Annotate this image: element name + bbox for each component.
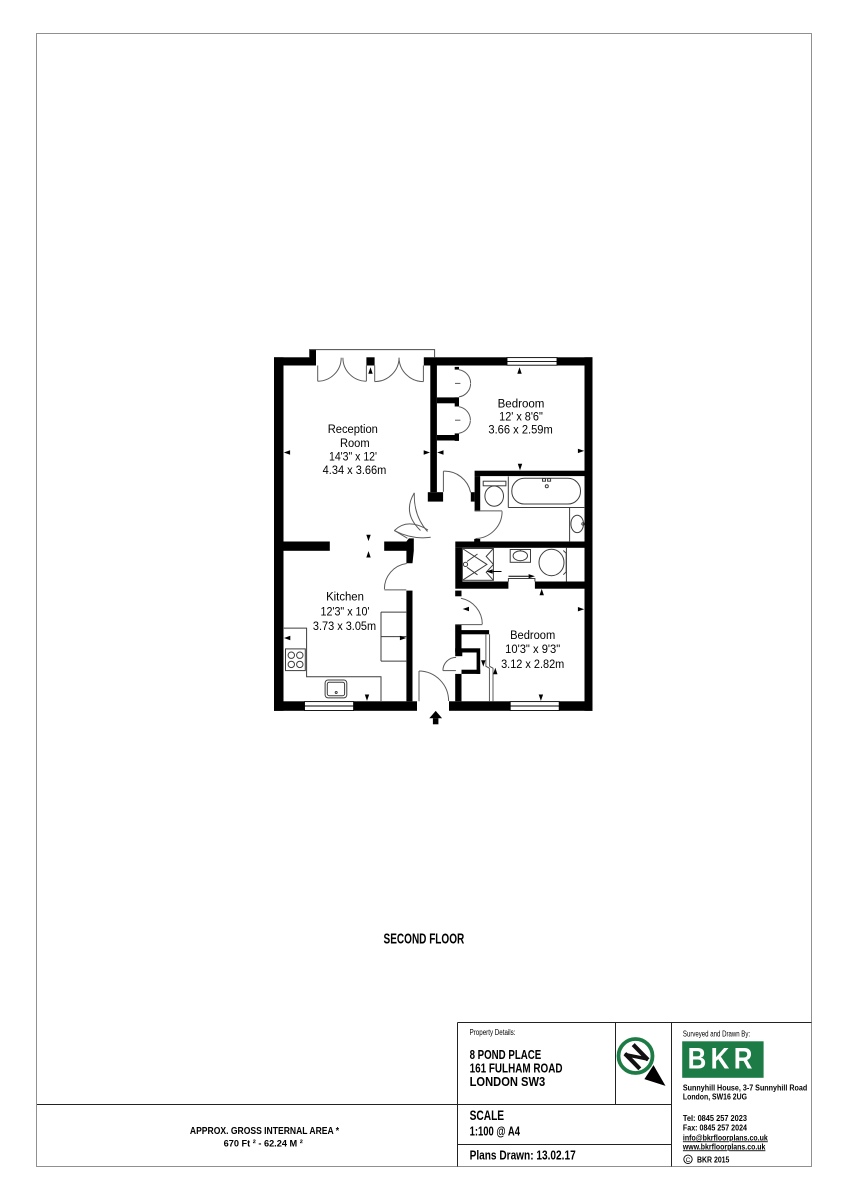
svg-text:BKR: BKR xyxy=(688,1042,757,1075)
svg-text:Bedroom: Bedroom xyxy=(498,396,545,410)
svg-text:Plans Drawn: 13.02.17: Plans Drawn: 13.02.17 xyxy=(470,1149,576,1163)
svg-text:SCALE: SCALE xyxy=(470,1108,505,1123)
svg-text:London, SW16 2UG: London, SW16 2UG xyxy=(683,1091,747,1101)
svg-text:C: C xyxy=(686,1157,691,1164)
svg-text:APPROX. GROSS INTERNAL AREA *: APPROX. GROSS INTERNAL AREA * xyxy=(190,1126,339,1137)
svg-text:Surveyed and Drawn By:: Surveyed and Drawn By: xyxy=(683,1030,750,1039)
svg-text:Room: Room xyxy=(340,436,370,450)
svg-text:Kitchen: Kitchen xyxy=(326,590,364,604)
svg-text:SECOND FLOOR: SECOND FLOOR xyxy=(384,932,465,948)
svg-text:3.12 x 2.82m: 3.12 x 2.82m xyxy=(501,657,564,671)
svg-text:Property Details:: Property Details: xyxy=(470,1028,516,1037)
svg-text:8 POND PLACE: 8 POND PLACE xyxy=(470,1048,542,1062)
svg-text:Bedroom: Bedroom xyxy=(510,628,555,642)
svg-text:3.73 x 3.05m: 3.73 x 3.05m xyxy=(313,619,376,633)
svg-text:4.34 x 3.66m: 4.34 x 3.66m xyxy=(323,463,387,477)
svg-text:3.66 x 2.59m: 3.66 x 2.59m xyxy=(488,423,552,437)
svg-text:Reception: Reception xyxy=(328,422,378,436)
svg-text:LONDON SW3: LONDON SW3 xyxy=(470,1075,546,1089)
svg-text:BKR 2015: BKR 2015 xyxy=(697,1154,730,1164)
svg-text:161 FULHAM ROAD: 161 FULHAM ROAD xyxy=(470,1062,563,1076)
svg-text:14'3" x 12': 14'3" x 12' xyxy=(329,450,377,464)
svg-text:670 Ft ² - 62.24 M ²: 670 Ft ² - 62.24 M ² xyxy=(224,1139,303,1149)
svg-text:10'3" x 9'3": 10'3" x 9'3" xyxy=(505,642,560,656)
svg-text:Tel: 0845 257 2023: Tel: 0845 257 2023 xyxy=(683,1113,747,1123)
svg-text:Fax: 0845 257 2024: Fax: 0845 257 2024 xyxy=(683,1122,747,1132)
svg-text:12' x 8'6": 12' x 8'6" xyxy=(499,410,543,424)
svg-text:12'3" x 10': 12'3" x 10' xyxy=(321,605,370,619)
svg-text:1:100 @ A4: 1:100 @ A4 xyxy=(470,1125,520,1139)
svg-text:www.bkrfloorplans.co.uk: www.bkrfloorplans.co.uk xyxy=(682,1141,765,1151)
